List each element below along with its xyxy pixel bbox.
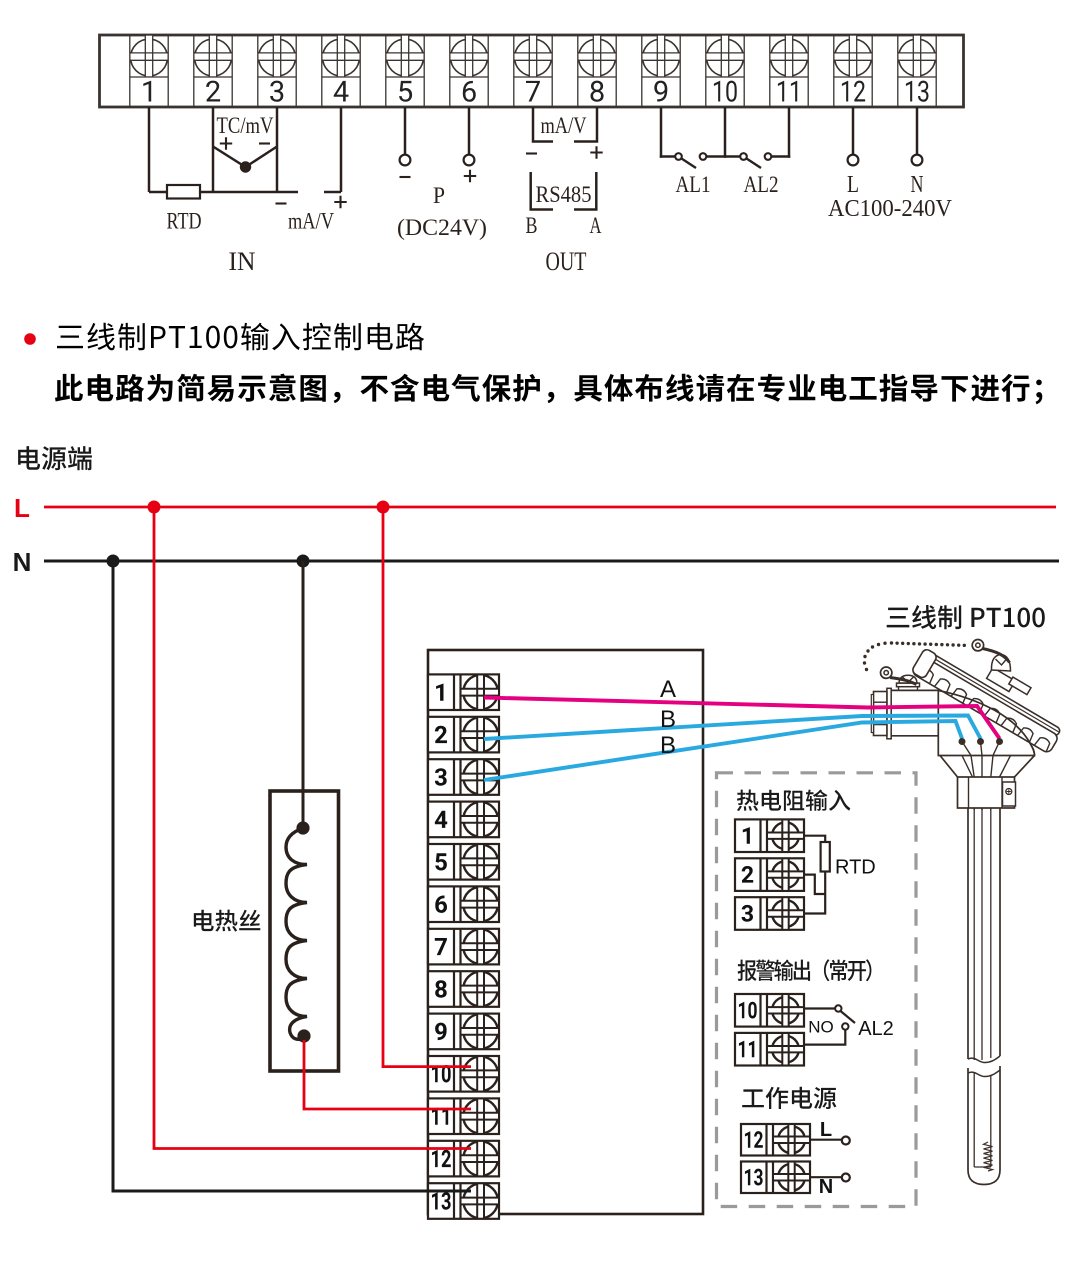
- svg-text:AL2: AL2: [858, 1018, 894, 1040]
- svg-text:B: B: [526, 213, 538, 238]
- svg-text:P: P: [433, 183, 445, 208]
- svg-text:(DC24V): (DC24V): [397, 215, 487, 240]
- svg-text:N: N: [911, 172, 924, 198]
- svg-text:A: A: [590, 213, 602, 238]
- svg-text:AC100-240V: AC100-240V: [828, 196, 953, 222]
- svg-text:RS485: RS485: [536, 182, 592, 207]
- svg-text:A: A: [660, 676, 676, 703]
- svg-text:AL1: AL1: [676, 172, 711, 197]
- svg-text:mA/V: mA/V: [541, 113, 587, 138]
- svg-text:L: L: [847, 172, 859, 198]
- svg-text:NO: NO: [808, 1018, 834, 1037]
- svg-text:L: L: [14, 493, 30, 523]
- svg-text:RTD: RTD: [835, 857, 876, 879]
- svg-text:B: B: [660, 706, 676, 733]
- svg-text:OUT: OUT: [546, 247, 587, 276]
- svg-text:L: L: [820, 1119, 832, 1141]
- svg-text:mA/V: mA/V: [288, 209, 334, 234]
- svg-text:N: N: [819, 1176, 833, 1198]
- svg-text:RTD: RTD: [167, 209, 202, 234]
- svg-text:B: B: [660, 732, 676, 759]
- svg-text:TC/mV: TC/mV: [217, 113, 274, 138]
- svg-text:AL2: AL2: [744, 172, 779, 197]
- svg-text:IN: IN: [229, 247, 256, 276]
- svg-text:N: N: [13, 547, 32, 577]
